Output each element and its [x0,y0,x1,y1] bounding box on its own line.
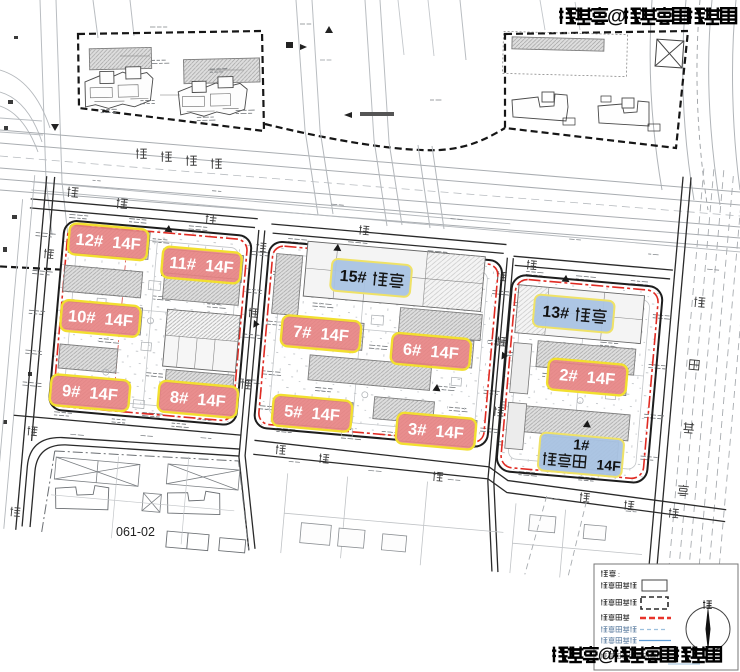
svg-text:@: @ [607,5,626,27]
svg-text:14F: 14F [596,456,622,474]
svg-text:1#: 1# [572,437,589,454]
svg-text:15#: 15# [339,268,367,287]
svg-text:@: @ [598,644,616,665]
svg-text::: : [618,572,620,579]
svg-text:13#: 13# [542,303,570,322]
svg-text:061-02: 061-02 [116,525,155,539]
